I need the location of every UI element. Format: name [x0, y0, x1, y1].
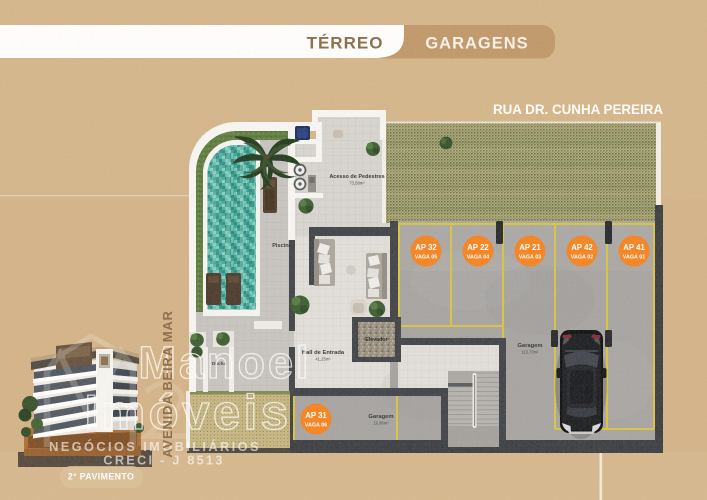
svg-text:19,96m²: 19,96m²: [373, 421, 389, 426]
svg-text:Imóveis: Imóveis: [85, 386, 292, 440]
svg-text:RUA DR. CUNHA PEREIRA: RUA DR. CUNHA PEREIRA: [493, 102, 663, 117]
svg-text:AVENIDA BEIRA MAR: AVENIDA BEIRA MAR: [160, 310, 175, 457]
svg-text:2° PAVIMENTO: 2° PAVIMENTO: [68, 472, 135, 482]
svg-text:VAGA 05: VAGA 05: [415, 255, 437, 261]
svg-text:Elevador: Elevador: [365, 337, 387, 343]
svg-text:Garagem: Garagem: [517, 343, 542, 349]
svg-text:73,58m²: 73,58m²: [349, 181, 365, 186]
svg-text:AP 31: AP 31: [305, 411, 327, 420]
svg-text:VAGA 03: VAGA 03: [519, 255, 541, 261]
svg-text:TÉRREO: TÉRREO: [307, 34, 384, 53]
svg-text:VAGA 06: VAGA 06: [305, 423, 327, 429]
svg-text:Piscina: Piscina: [272, 243, 292, 249]
svg-text:VAGA 02: VAGA 02: [571, 255, 593, 261]
svg-text:GARAGENS: GARAGENS: [425, 35, 528, 53]
svg-text:AP 22: AP 22: [467, 243, 489, 252]
svg-text:113,70m²: 113,70m²: [521, 350, 539, 355]
svg-text:AP 42: AP 42: [571, 243, 593, 252]
svg-text:AP 21: AP 21: [519, 243, 541, 252]
svg-text:AP 32: AP 32: [415, 243, 437, 252]
svg-text:VAGA 04: VAGA 04: [467, 255, 489, 261]
svg-text:Acesso de Pedestres: Acesso de Pedestres: [329, 174, 384, 180]
svg-text:Garagem: Garagem: [368, 414, 393, 420]
svg-text:VAGA 01: VAGA 01: [623, 255, 645, 261]
svg-text:AP 41: AP 41: [623, 243, 645, 252]
svg-text:41,25m²: 41,25m²: [315, 357, 331, 362]
